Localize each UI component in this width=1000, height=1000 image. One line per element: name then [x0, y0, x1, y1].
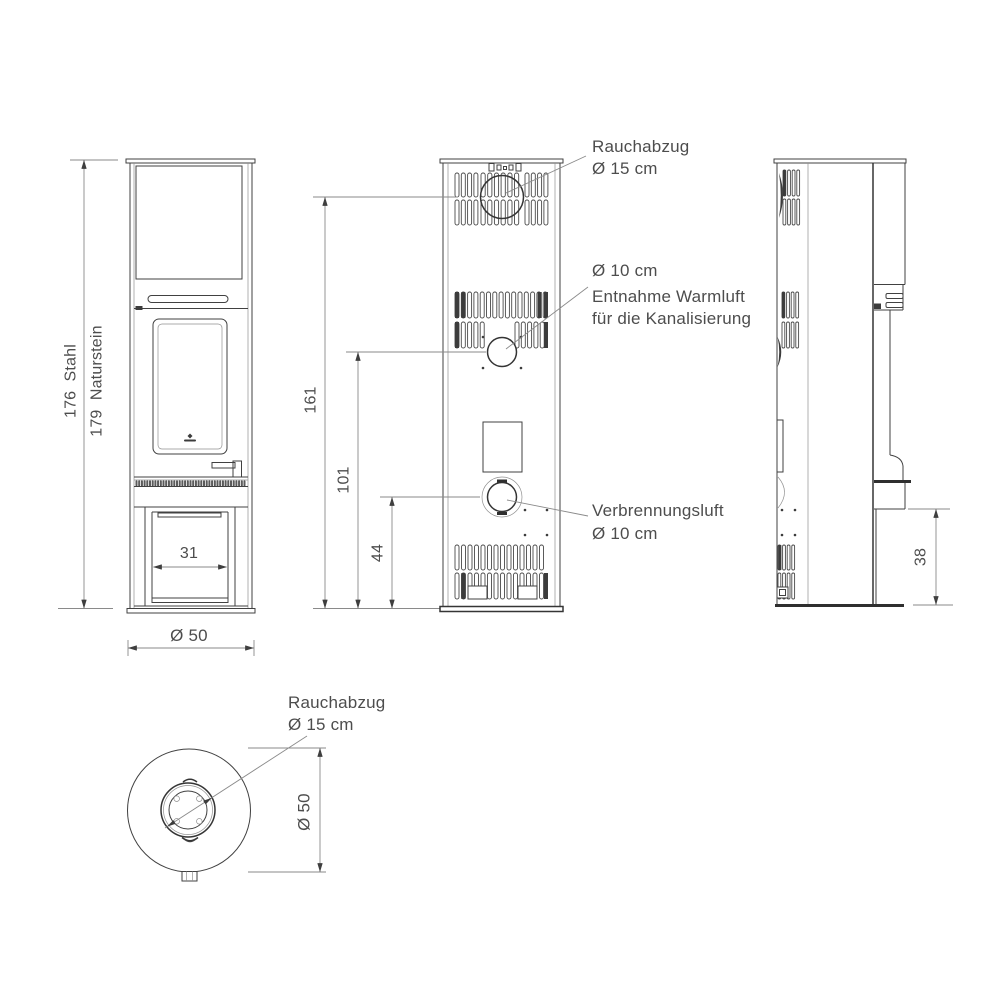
vent-slat: [455, 573, 459, 599]
vent-slat: [187, 481, 188, 486]
vent-slat: [783, 199, 786, 225]
vent-slat: [544, 200, 548, 225]
vent-slat: [787, 292, 790, 318]
vent-slat: [222, 481, 223, 486]
vent-slat: [501, 573, 505, 599]
warm-air-outlet: [488, 338, 517, 367]
vent-slat: [540, 573, 544, 599]
vent-slat: [531, 200, 535, 225]
side-view: 38: [774, 159, 953, 606]
electrical-box-side: [777, 420, 783, 472]
rear-view: 161 101 44 Rauchabzug Ø 15 cm Ø 10 cm En…: [303, 137, 752, 612]
vent-slat: [182, 481, 183, 486]
door-glass: [158, 324, 222, 449]
vent-slat: [796, 322, 799, 348]
vent-slat: [505, 292, 509, 318]
vent-slat: [791, 322, 794, 348]
body-outline-top: [128, 749, 251, 872]
vent-slat: [527, 545, 531, 570]
vent-slat: [520, 545, 524, 570]
vent-slat: [540, 322, 544, 348]
technical-drawing-stove: 31 Ø 50 176 Stahl 179 Naturstein: [0, 0, 1000, 1000]
vent-slat: [136, 481, 137, 486]
rear-base-plate: [440, 607, 563, 612]
side-vent-field: [783, 199, 800, 225]
vent-slat: [487, 292, 491, 318]
vent-slat: [468, 292, 472, 318]
electrical-box: [483, 422, 522, 472]
vent-slat: [782, 322, 785, 348]
vent-slat: [220, 481, 221, 486]
vent-slat: [792, 573, 795, 599]
rear-vent-field: [455, 173, 478, 197]
brand-logo: [184, 434, 196, 442]
side-foot-bracket: [777, 587, 788, 598]
rear-vent-field: [455, 545, 544, 570]
vent-slat: [501, 173, 505, 197]
top-diameter-label: Ø 50: [295, 793, 314, 831]
vent-slat: [144, 481, 145, 486]
top-view: Rauchabzug Ø 15 cm Ø 50: [128, 693, 386, 881]
vent-slat: [206, 481, 207, 486]
vent-slat: [152, 481, 153, 486]
vent-slat: [198, 481, 199, 486]
vent-slat: [788, 170, 791, 196]
flue-height-label: 161: [303, 386, 320, 413]
vent-slat: [792, 170, 795, 196]
dimension-front-diameter: Ø 50: [128, 626, 254, 656]
vent-slat: [147, 481, 148, 486]
vent-slat: [462, 545, 466, 570]
vent-slat: [540, 545, 544, 570]
vent-slat: [455, 545, 459, 570]
height-stone-label: 179 Naturstein: [89, 325, 106, 437]
vent-slat: [185, 481, 186, 486]
side-vent-field: [782, 322, 799, 348]
vent-slat: [499, 292, 503, 318]
junction-tab-top: [182, 872, 197, 882]
vent-slat: [531, 292, 535, 318]
vent-slat: [797, 199, 800, 225]
vent-slat: [217, 481, 218, 486]
vent-slat: [494, 573, 498, 599]
warm-air-height-label: 101: [336, 466, 353, 493]
flue-flange-top: [161, 779, 215, 842]
vent-slat: [488, 573, 492, 599]
vent-slat: [787, 322, 790, 348]
vent-slat: [158, 481, 159, 486]
rear-vent-field: [525, 173, 548, 197]
flue-callout-line2: Ø 15 cm: [592, 159, 658, 178]
rear-vent-field: [455, 322, 484, 348]
vent-slat: [493, 292, 497, 318]
vent-slat: [244, 481, 245, 486]
dimension-opening-width: 31: [154, 545, 227, 567]
vent-slat: [514, 545, 518, 570]
front-top-plate: [126, 159, 255, 163]
top-flue-callout: Rauchabzug Ø 15 cm: [165, 693, 385, 828]
rear-vent-field: [515, 322, 544, 348]
vent-slat: [150, 481, 151, 486]
vent-slat: [488, 173, 492, 197]
combustion-callout-line1: Verbrennungsluft: [592, 501, 724, 520]
vent-slat: [783, 545, 786, 570]
rear-foot-bracket: [468, 586, 487, 599]
dimension-total-height: 176 Stahl 179 Naturstein: [58, 160, 118, 609]
vent-slat: [488, 545, 492, 570]
vent-slat: [544, 173, 548, 197]
vent-slat: [212, 481, 213, 486]
door-handle: [212, 461, 242, 477]
combustion-air-height-label: 44: [370, 544, 387, 562]
vent-slat: [468, 200, 472, 225]
combustion-air-outlet: [482, 477, 522, 517]
vent-slat: [461, 173, 465, 197]
rear-vent-field: [525, 200, 548, 225]
vent-slat: [461, 200, 465, 225]
plinth-height-label: 38: [913, 548, 930, 566]
vent-slat: [474, 200, 478, 225]
warm-air-callout-line2: Entnahme Warmluft: [592, 287, 745, 306]
vent-slat: [514, 573, 518, 599]
vent-slat: [480, 292, 484, 318]
vent-slat: [474, 322, 478, 348]
vent-slat: [488, 200, 492, 225]
vent-slat: [139, 481, 140, 486]
height-steel-label: 176 Stahl: [63, 344, 80, 418]
vent-slat: [160, 481, 161, 486]
vent-slat: [533, 545, 537, 570]
vent-slat: [531, 173, 535, 197]
vent-slat: [507, 545, 511, 570]
rear-top-vent-squares: [489, 164, 521, 172]
vent-slat: [166, 481, 167, 486]
warm-air-collar-side: [778, 337, 782, 367]
vent-slat: [455, 200, 459, 225]
opening-width-label: 31: [180, 545, 198, 562]
flue-collar-side: [779, 173, 783, 218]
vent-slat: [171, 481, 172, 486]
door-handle-profile: [874, 285, 903, 311]
vent-slat: [163, 481, 164, 486]
vent-slat: [512, 292, 516, 318]
air-control-slot: [148, 296, 228, 303]
side-top-plate: [774, 159, 906, 163]
vent-slat: [204, 481, 205, 486]
front-top-cladding-panel: [136, 166, 242, 279]
vent-slat: [518, 292, 522, 318]
vent-slat: [792, 199, 795, 225]
vent-slat: [190, 481, 191, 486]
vent-slat: [193, 481, 194, 486]
vent-slat: [455, 173, 459, 197]
vent-slat: [168, 481, 169, 486]
vent-slat: [501, 200, 505, 225]
vent-slat: [515, 322, 519, 348]
vent-slat: [468, 322, 472, 348]
top-flue-callout-line1: Rauchabzug: [288, 693, 385, 712]
front-grate-strip: [136, 481, 245, 486]
vent-slat: [796, 292, 799, 318]
vent-slat: [177, 481, 178, 486]
vent-slat: [228, 481, 229, 486]
vent-slat: [233, 481, 234, 486]
vent-slat: [528, 322, 532, 348]
vent-slat: [515, 173, 519, 197]
vent-slat: [174, 481, 175, 486]
vent-slat: [797, 170, 800, 196]
vent-slat: [141, 481, 142, 486]
vent-slat: [201, 481, 202, 486]
vent-slat: [494, 200, 498, 225]
vent-slat: [214, 481, 215, 486]
vent-slat: [524, 292, 528, 318]
vent-slat: [792, 545, 795, 570]
drawing-canvas: 31 Ø 50 176 Stahl 179 Naturstein: [0, 0, 1000, 1000]
vent-slat: [179, 481, 180, 486]
vent-slat: [501, 545, 505, 570]
vent-slat: [480, 322, 484, 348]
vent-slat: [468, 173, 472, 197]
vent-slat: [209, 481, 210, 486]
front-base-plate: [127, 609, 255, 614]
vent-slat: [787, 545, 790, 570]
vent-slat: [231, 481, 232, 486]
rear-vent-field: [455, 200, 478, 225]
vent-slat: [481, 545, 485, 570]
vent-slat: [788, 199, 791, 225]
vent-slat: [525, 200, 529, 225]
vent-slat: [468, 545, 472, 570]
front-diameter-label: Ø 50: [170, 626, 208, 645]
rear-foot-bracket: [518, 586, 537, 599]
vent-slat: [241, 481, 242, 486]
vent-slat: [507, 573, 511, 599]
rear-top-plate: [440, 159, 563, 163]
combustion-callout-line2: Ø 10 cm: [592, 524, 658, 543]
vent-slat: [525, 173, 529, 197]
flue-callout-line1: Rauchabzug: [592, 137, 689, 156]
vent-slat: [195, 481, 196, 486]
vent-slat: [225, 481, 226, 486]
rear-vent-field: [481, 173, 519, 197]
flue-callout: Rauchabzug Ø 15 cm: [506, 137, 689, 193]
vent-slat: [461, 322, 465, 348]
dimension-plinth-height: 38: [908, 509, 953, 605]
vent-slat: [791, 292, 794, 318]
warm-air-callout-line1: Ø 10 cm: [592, 261, 658, 280]
vent-slat: [475, 545, 479, 570]
combustion-air-callout: Verbrennungsluft Ø 10 cm: [507, 500, 724, 543]
door-hinge: [136, 306, 143, 310]
vent-slat: [236, 481, 237, 486]
vent-slat: [494, 545, 498, 570]
rear-vent-field: [455, 292, 547, 318]
vent-slat: [538, 200, 542, 225]
front-view: 31 Ø 50 176 Stahl 179 Naturstein: [58, 159, 255, 656]
vent-slat: [474, 292, 478, 318]
vent-slat: [155, 481, 156, 486]
vent-slat: [239, 481, 240, 486]
vent-slat: [474, 173, 478, 197]
warm-air-callout-line3: für die Kanalisierung: [592, 309, 751, 328]
vent-slat: [508, 200, 512, 225]
top-flue-callout-line2: Ø 15 cm: [288, 715, 354, 734]
